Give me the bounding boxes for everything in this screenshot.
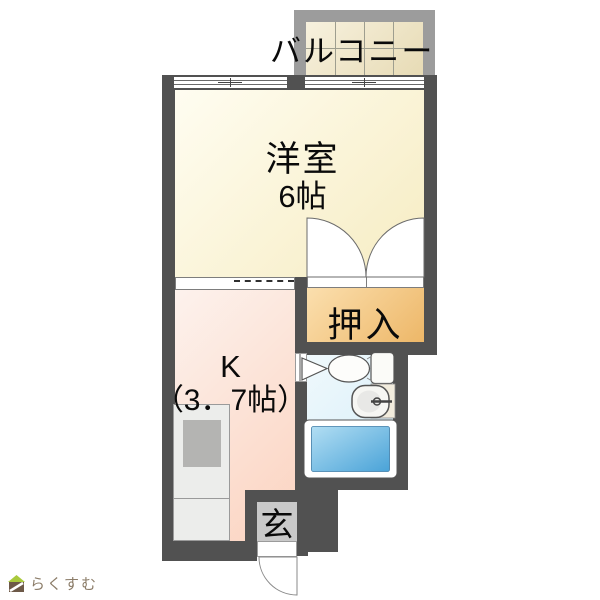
wall-right-upper bbox=[424, 75, 437, 355]
house-icon bbox=[8, 575, 25, 592]
wall-bottom bbox=[162, 541, 257, 561]
entrance-door-gap bbox=[257, 541, 297, 557]
kitchen-counter bbox=[173, 404, 230, 541]
kitchen-name: K bbox=[148, 349, 313, 384]
window-right bbox=[305, 75, 424, 90]
closet-label: 押入 bbox=[307, 297, 424, 348]
balcony-rail-top bbox=[294, 10, 435, 22]
sliding-door-kitchen-room bbox=[175, 277, 295, 290]
kitchen-sink bbox=[183, 420, 221, 467]
logo-text: らくすむ bbox=[30, 573, 98, 594]
kitchen-size: （3．7帖） bbox=[148, 384, 313, 418]
entrance-tile: 玄 bbox=[257, 502, 297, 541]
floor-plan: 玄 bbox=[0, 0, 600, 600]
logo: らくすむ bbox=[8, 573, 98, 594]
balcony-label: バルコニー bbox=[270, 26, 434, 71]
western-room-size: 6帖 bbox=[225, 180, 380, 214]
wall-right-lower bbox=[393, 352, 408, 490]
wall-bath-bottom bbox=[295, 478, 408, 490]
wall-top-pier bbox=[287, 75, 305, 90]
entrance-label: 玄 bbox=[261, 498, 294, 546]
kitchen-label-group: K （3．7帖） bbox=[148, 349, 313, 418]
western-room-label-group: 洋室 6帖 bbox=[225, 140, 380, 214]
wall-entrance-left bbox=[245, 490, 257, 541]
window-left bbox=[174, 75, 287, 90]
western-room-name: 洋室 bbox=[225, 140, 380, 180]
entrance-door-swing bbox=[259, 557, 297, 595]
bathroom-floor bbox=[307, 352, 393, 478]
closet-door-band bbox=[307, 276, 424, 288]
wall-door-stub bbox=[297, 541, 308, 556]
